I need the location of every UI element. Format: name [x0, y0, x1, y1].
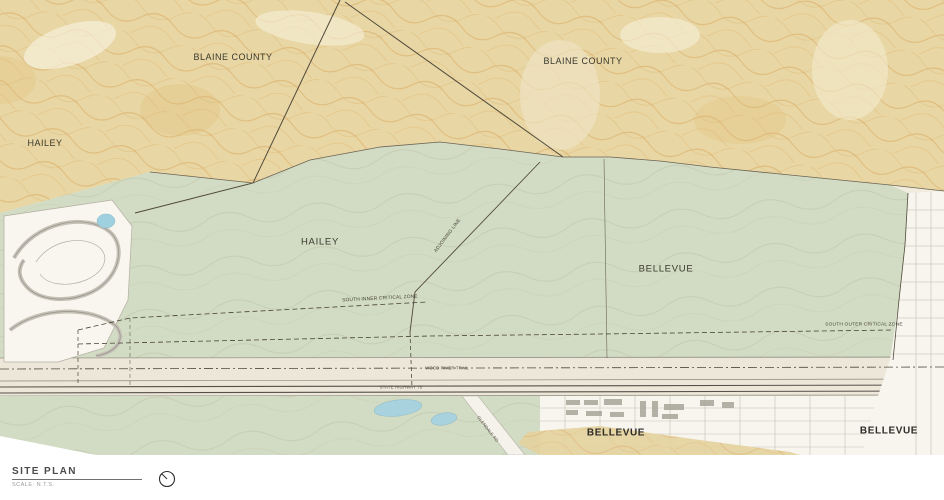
title-rule	[12, 479, 142, 480]
title-block: SITE PLAN SCALE: N.T.S.	[12, 466, 142, 488]
highway-corridor	[0, 357, 944, 396]
south-strip	[0, 396, 944, 455]
north-arrow-icon	[156, 468, 178, 490]
label-bellevue-parcel: BELLEVUE	[639, 264, 694, 275]
label-blaine-county-right: BLAINE COUNTY	[543, 56, 622, 66]
site-plan-sheet: BLAINE COUNTY BLAINE COUNTY HAILEY HAILE…	[0, 0, 944, 500]
label-hailey-city: HAILEY	[27, 138, 62, 148]
sheet-title: SITE PLAN	[12, 466, 142, 477]
label-south-outer-critical-zone: SOUTH OUTER CRITICAL ZONE	[825, 323, 903, 328]
label-blaine-county-left: BLAINE COUNTY	[193, 52, 272, 62]
map-graphic	[0, 0, 944, 455]
scale-note: SCALE: N.T.S.	[12, 482, 142, 488]
label-hailey-parcel: HAILEY	[301, 237, 339, 248]
label-bellevue-town-center: BELLEVUE	[587, 428, 645, 439]
subdivision-pond	[97, 214, 115, 228]
label-wood-river-trail: WOOD RIVER TRAIL	[425, 366, 469, 371]
label-bellevue-town-east: BELLEVUE	[860, 426, 918, 437]
site-plan-map: BLAINE COUNTY BLAINE COUNTY HAILEY HAILE…	[0, 0, 944, 455]
label-state-highway: STATE HIGHWAY 75	[380, 385, 423, 390]
